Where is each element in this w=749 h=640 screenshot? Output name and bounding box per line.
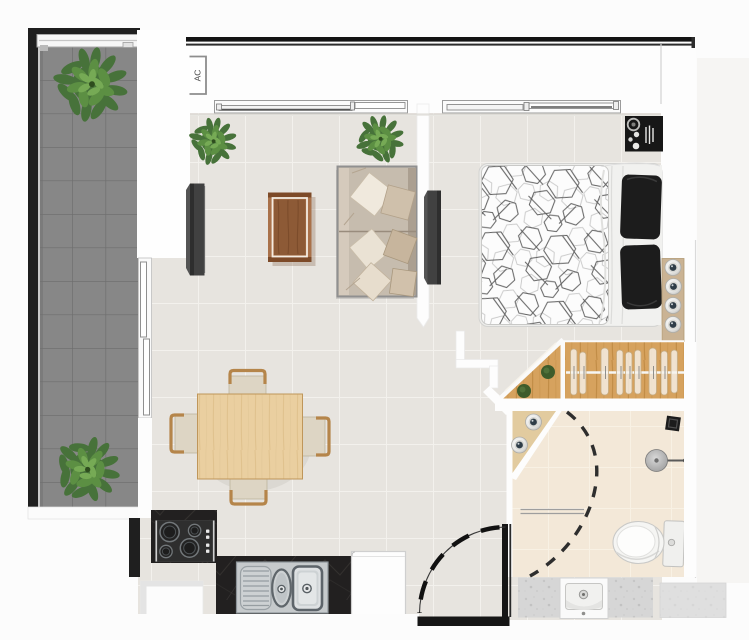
svg-text:AC: AC (192, 70, 202, 82)
